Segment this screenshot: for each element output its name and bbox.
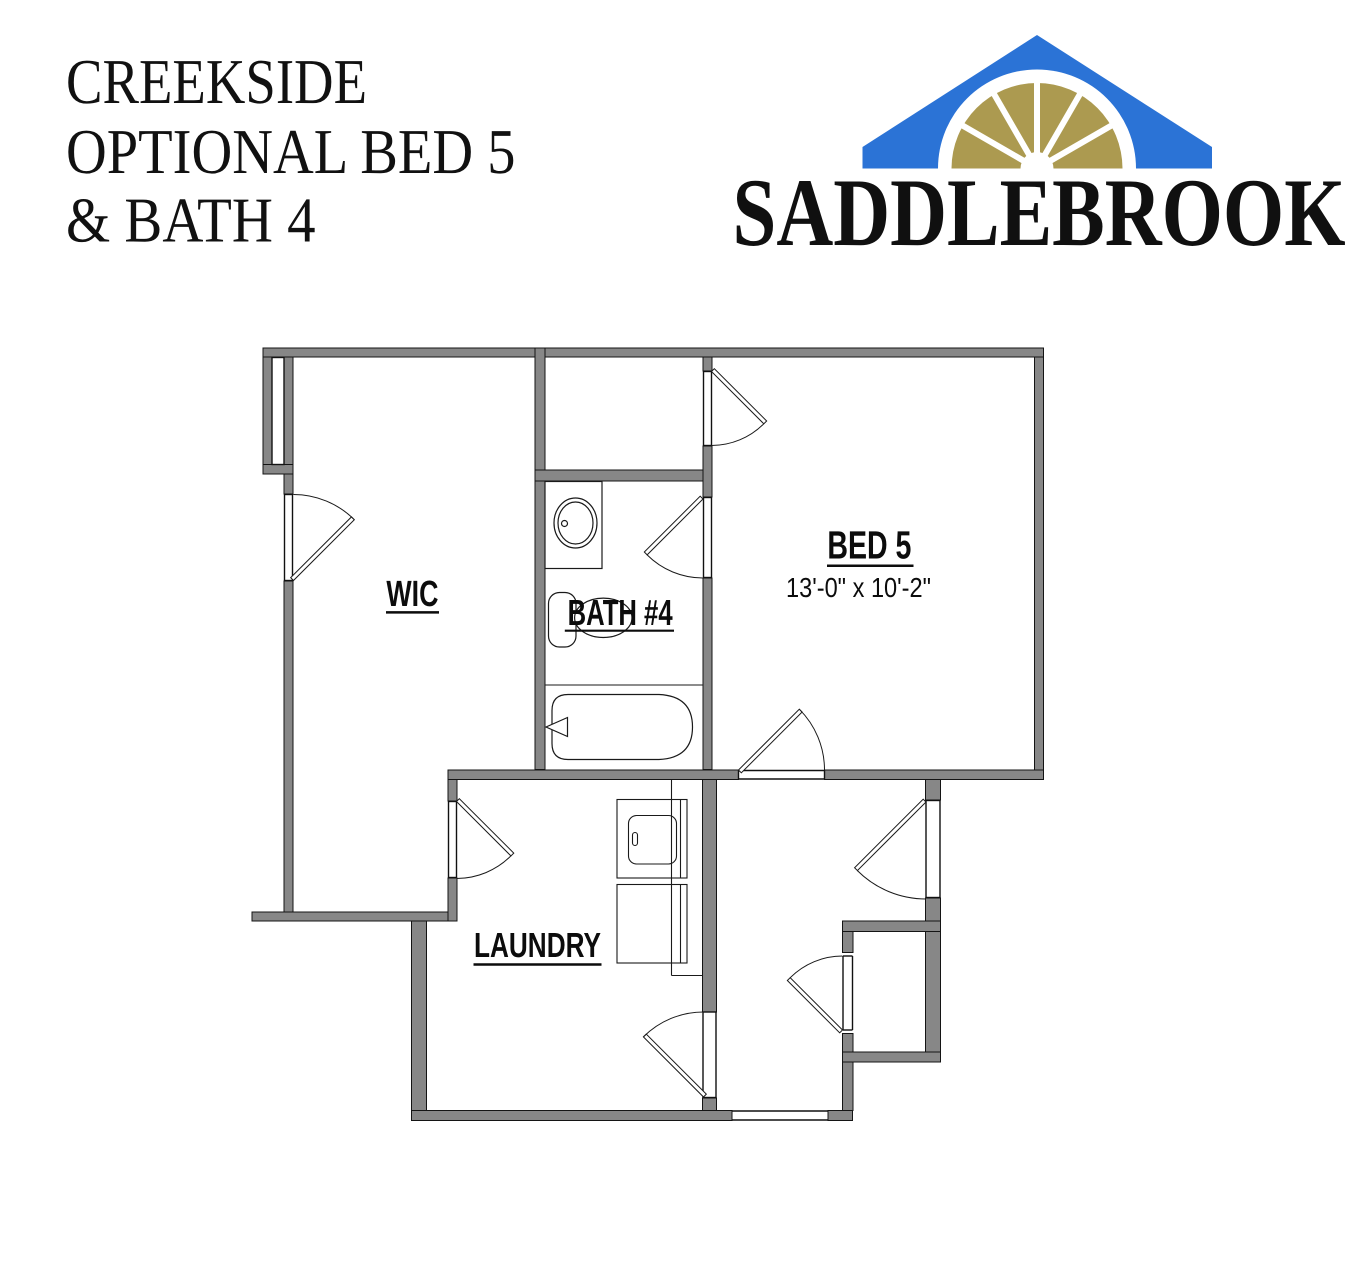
svg-text:SADDLEBROOK: SADDLEBROOK (733, 159, 1346, 266)
svg-text:LAUNDRY: LAUNDRY (474, 926, 601, 965)
svg-text:13'-0" x 10'-2": 13'-0" x 10'-2" (786, 572, 931, 603)
svg-text:BATH #4: BATH #4 (568, 592, 673, 633)
svg-text:CREEKSIDE: CREEKSIDE (66, 46, 367, 117)
svg-text:WIC: WIC (386, 573, 438, 614)
svg-text:& BATH 4: & BATH 4 (66, 185, 316, 256)
svg-text:OPTIONAL BED 5: OPTIONAL BED 5 (66, 116, 516, 187)
svg-text:BED 5: BED 5 (827, 524, 911, 568)
